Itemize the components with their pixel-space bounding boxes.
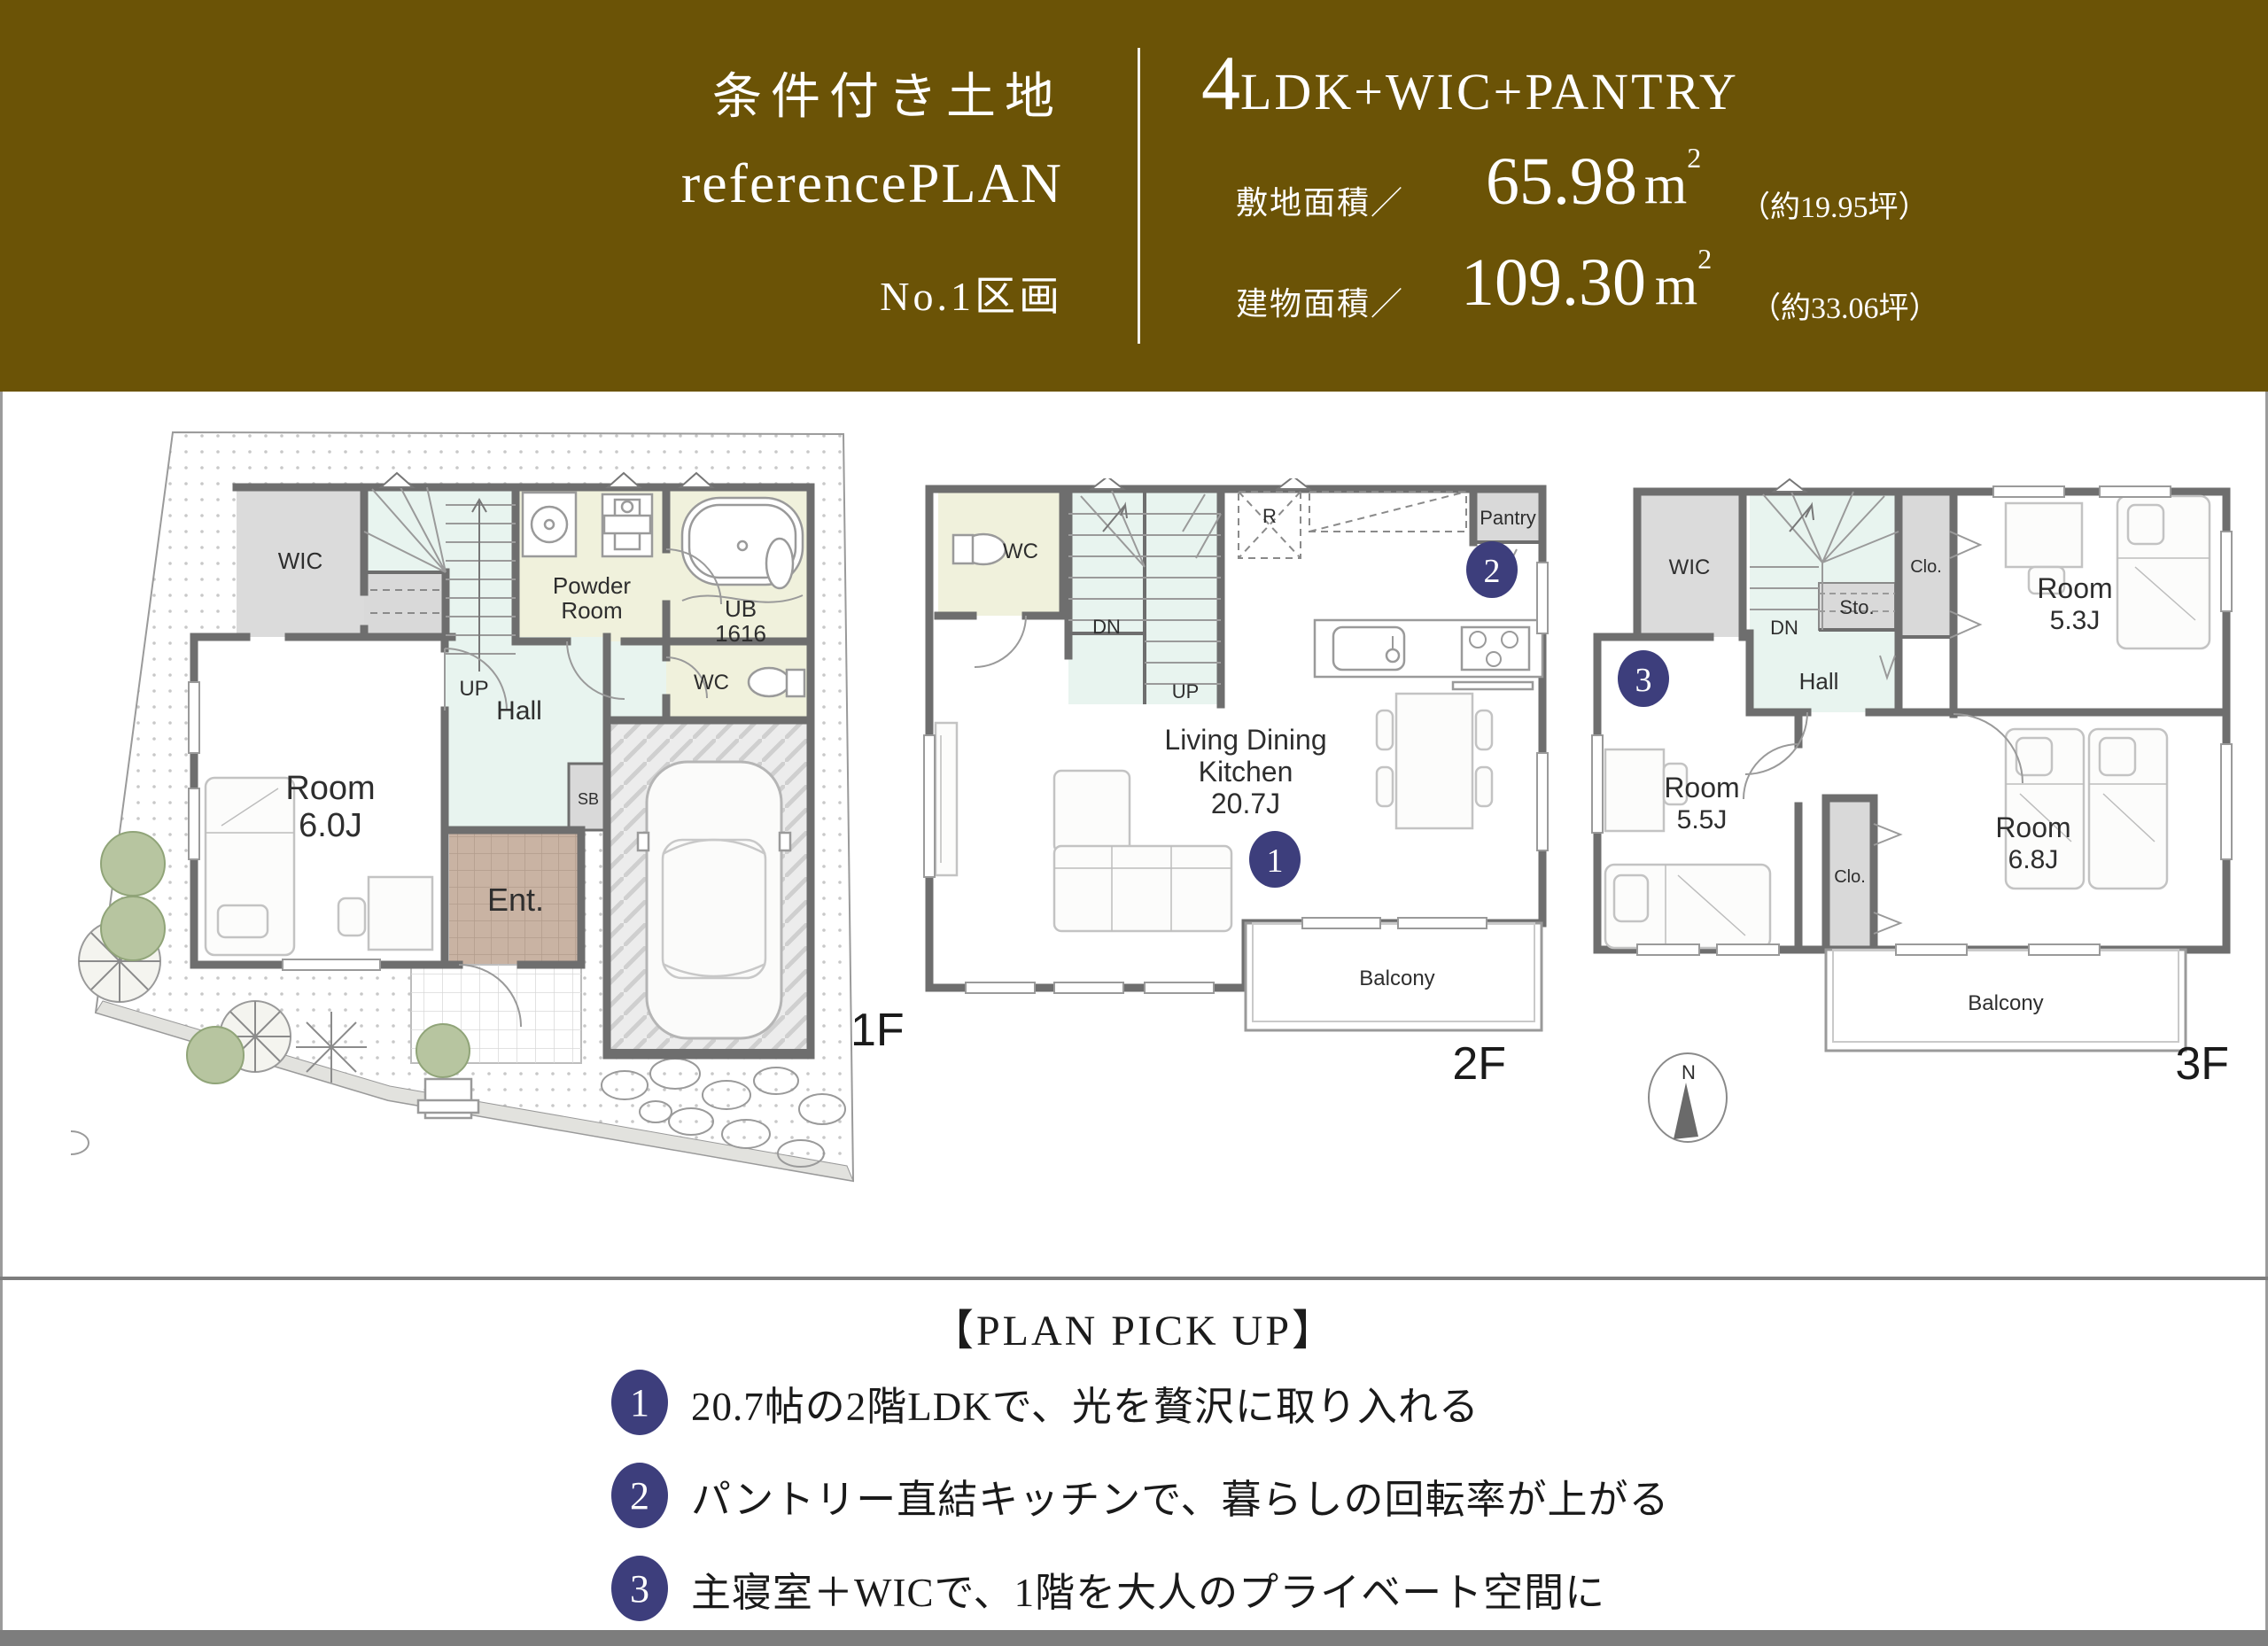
- room-label-room-1f: Room: [285, 770, 375, 807]
- room-label-room53-1: Room: [2037, 572, 2112, 604]
- room-label-room68-2: 6.8J: [2008, 845, 2059, 874]
- room-label-wic-3f: WIC: [1669, 555, 1711, 579]
- site-area-value: 65.98: [1380, 144, 1637, 221]
- site-area-tsubo: （約19.95坪）: [1740, 182, 1929, 226]
- room-label-wic-1f: WIC: [278, 547, 323, 574]
- pickup-badge-2f-2: 2: [1466, 541, 1518, 598]
- header-divider: [1138, 48, 1140, 344]
- pickup-item-3: 3 主寝室＋WICで、1階を大人のプライベート空間に: [611, 1556, 1605, 1621]
- floor-label-3f: 3F: [2175, 1038, 2229, 1090]
- room-label-clo-bottom-3f: Clo.: [1834, 867, 1866, 887]
- room-label-dn-2f: DN: [1092, 616, 1121, 638]
- pickup-text-1: 20.7帖の2階LDKで、光を贅沢に取り入れる: [691, 1374, 1480, 1432]
- pickup-badge-2f-1: 1: [1249, 831, 1301, 888]
- floor-label-2f: 2F: [1452, 1038, 1506, 1090]
- header-title-lot: No.1区画: [880, 264, 1063, 322]
- compass-icon: N: [1649, 1053, 1727, 1142]
- room-label-powder-2: Room: [561, 597, 622, 624]
- pickup-badge-2: 2: [611, 1463, 668, 1528]
- room-label-room-size-1f: 6.0J: [299, 807, 362, 844]
- plan-type-rest: LDK+WIC+PANTRY: [1240, 62, 1739, 121]
- floor-plan-1f: WIC UP Powder Room UB 1616 WC Hall SB Ro…: [71, 416, 921, 1205]
- pickup-text-3: 主寝室＋WICで、1階を大人のプライベート空間に: [691, 1560, 1605, 1618]
- room-label-ub-1: UB: [725, 595, 757, 622]
- pickup-badge-3: 3: [611, 1556, 668, 1621]
- pickup-title: 【PLAN PICK UP】: [0, 1295, 2268, 1357]
- header-title-plan: referencePLAN: [681, 151, 1063, 216]
- room-label-room53-2: 5.3J: [2050, 606, 2101, 635]
- room-label-dn-3f: DN: [1770, 617, 1798, 639]
- room-label-wc-1f: WC: [694, 671, 729, 695]
- room-label-clo-top-3f: Clo.: [1910, 557, 1942, 577]
- svg-text:2: 2: [1484, 553, 1501, 590]
- svg-text:1: 1: [1267, 842, 1284, 880]
- room-label-room55-2: 5.5J: [1677, 805, 1728, 835]
- room-label-balcony-3f: Balcony: [1968, 991, 2043, 1015]
- room-label-wc-2f: WC: [1003, 540, 1038, 563]
- header-title-land: 条件付き土地: [712, 57, 1063, 128]
- site-area-label: 敷地面積／: [1236, 177, 1404, 223]
- footer-bar: [0, 1630, 2268, 1646]
- header: 条件付き土地 referencePLAN No.1区画 4LDK+WIC+PAN…: [0, 0, 2268, 392]
- room-label-ent-1f: Ent.: [487, 881, 544, 918]
- room-label-balcony-2f: Balcony: [1359, 967, 1434, 990]
- bldg-area-unit: m2: [1655, 255, 1712, 318]
- pickup-badge-3f-3: 3: [1618, 650, 1669, 707]
- room-label-room55-1: Room: [1664, 772, 1739, 804]
- room-label-ldk-2: Kitchen: [1199, 756, 1293, 788]
- bldg-area-tsubo: （約33.06坪）: [1751, 283, 1939, 327]
- section-divider: [0, 1277, 2268, 1280]
- flyer-page: 条件付き土地 referencePLAN No.1区画 4LDK+WIC+PAN…: [0, 0, 2268, 1646]
- room-label-ldk-3: 20.7J: [1211, 788, 1280, 819]
- plan-type: 4LDK+WIC+PANTRY: [1201, 39, 1739, 128]
- site-area-unit: m2: [1644, 154, 1701, 217]
- pickup-text-2: パントリー直結キッチンで、暮らしの回転率が上がる: [691, 1467, 1669, 1525]
- svg-text:N: N: [1682, 1061, 1696, 1083]
- pickup-item-1: 1 20.7帖の2階LDKで、光を贅沢に取り入れる: [611, 1370, 1480, 1435]
- room-label-ldk-1: Living Dining: [1164, 724, 1326, 756]
- pickup-item-2: 2 パントリー直結キッチンで、暮らしの回転率が上がる: [611, 1463, 1669, 1528]
- bldg-area-value: 109.30: [1380, 245, 1646, 322]
- plan-type-lead: 4: [1201, 39, 1240, 128]
- room-label-pantry-2f: Pantry: [1480, 507, 1536, 529]
- pickup-badge-1: 1: [611, 1370, 668, 1435]
- room-label-powder-1: Powder: [553, 572, 631, 599]
- room-label-up-2f: UP: [1172, 680, 1200, 703]
- room-label-hall-1f: Hall: [496, 696, 542, 726]
- floor-label-1f: 1F: [850, 1005, 905, 1056]
- room-label-sb-1f: SB: [578, 790, 599, 808]
- bldg-area-label: 建物面積／: [1236, 278, 1404, 324]
- room-label-up-1f: UP: [459, 677, 488, 701]
- svg-text:3: 3: [1635, 662, 1652, 699]
- room-label-hall-3f: Hall: [1799, 668, 1839, 695]
- floor-plan-2f: 2 1 WC DN UP R Pantry Living Dining Kitc…: [921, 478, 1550, 1116]
- left-border: [0, 392, 3, 1630]
- room-label-r-2f: R: [1262, 505, 1277, 527]
- floor-plan-3f: 3 N WIC DN Sto. Clo. Room 5.3J Hall Room…: [1586, 478, 2241, 1152]
- room-label-room68-1: Room: [1995, 811, 2070, 843]
- room-label-ub-2: 1616: [715, 620, 766, 647]
- car-icon: [638, 762, 790, 1038]
- room-label-sto-3f: Sto.: [1839, 596, 1874, 618]
